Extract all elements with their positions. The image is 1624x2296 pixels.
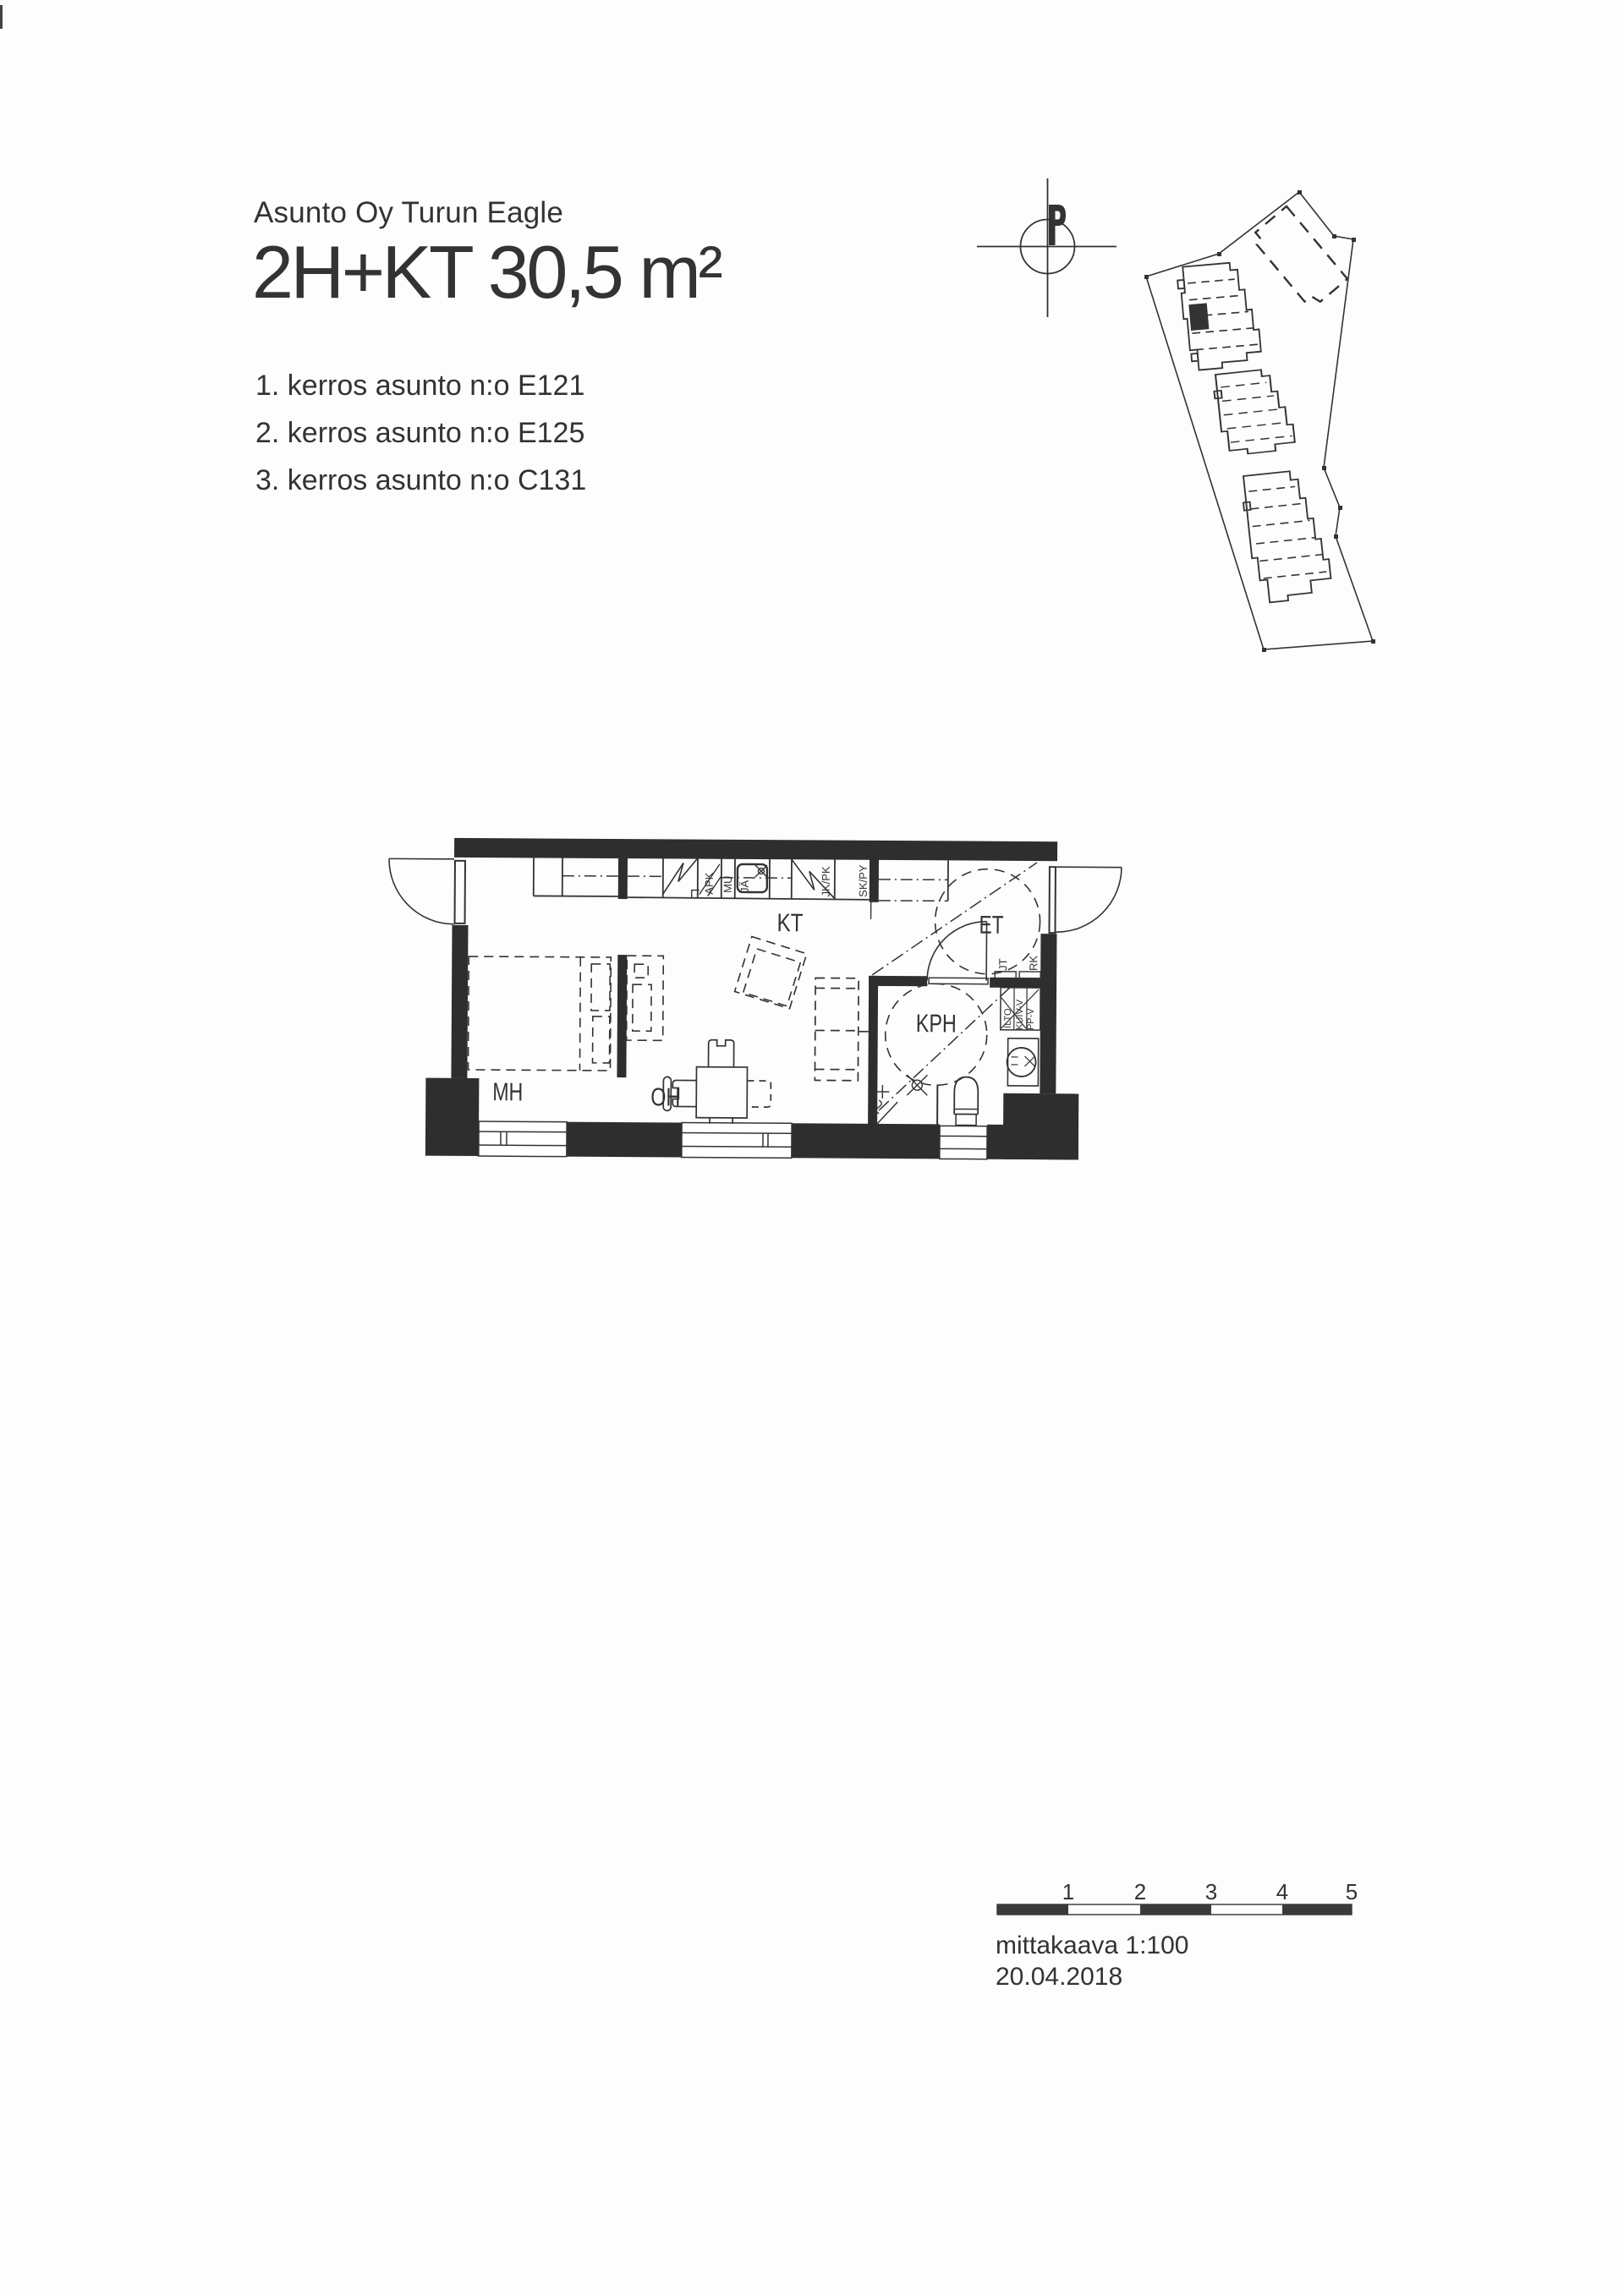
svg-text:JT: JT bbox=[996, 958, 1009, 971]
svg-text:4: 4 bbox=[1276, 1879, 1288, 1904]
svg-text:20.04.2018: 20.04.2018 bbox=[996, 1963, 1122, 1991]
svg-text:2: 2 bbox=[1134, 1879, 1146, 1904]
svg-text:ET: ET bbox=[979, 912, 1003, 940]
svg-text:mittakaava 1:100: mittakaava 1:100 bbox=[996, 1932, 1188, 1959]
svg-text:APK: APK bbox=[703, 872, 716, 894]
svg-text:KPH: KPH bbox=[916, 1010, 957, 1038]
svg-text:JÄ: JÄ bbox=[738, 879, 751, 893]
svg-text:MU: MU bbox=[721, 876, 734, 893]
svg-text:JK/PK: JK/PK bbox=[820, 866, 832, 897]
svg-text:MH: MH bbox=[492, 1078, 523, 1106]
svg-text:Asunto Oy Turun Eagle: Asunto Oy Turun Eagle bbox=[254, 196, 563, 229]
svg-text:RK: RK bbox=[1027, 956, 1040, 971]
svg-text:KT: KT bbox=[776, 909, 803, 937]
svg-text:PP-V: PP-V bbox=[1026, 1008, 1036, 1030]
svg-text:3: 3 bbox=[1205, 1879, 1217, 1904]
svg-text:SK/PY: SK/PY bbox=[857, 864, 870, 897]
svg-text:3. kerros asunto n:o C131: 3. kerros asunto n:o C131 bbox=[255, 464, 586, 496]
svg-text:2. kerros asunto n:o E125: 2. kerros asunto n:o E125 bbox=[255, 417, 584, 449]
svg-text:5: 5 bbox=[1346, 1879, 1358, 1904]
svg-text:2H+KT 30,5 m²: 2H+KT 30,5 m² bbox=[252, 230, 721, 314]
svg-text:ILTO: ILTO bbox=[1003, 1008, 1013, 1028]
svg-text:1. kerros asunto n:o E121: 1. kerros asunto n:o E121 bbox=[255, 370, 584, 402]
svg-text:OH: OH bbox=[650, 1083, 680, 1111]
svg-text:1: 1 bbox=[1062, 1879, 1074, 1904]
svg-text:KUIV-V: KUIV-V bbox=[1015, 999, 1025, 1030]
